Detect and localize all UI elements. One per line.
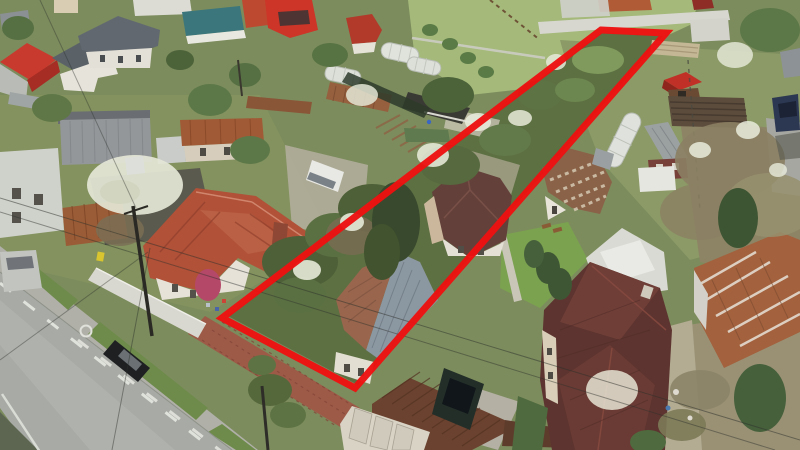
white-garage-top	[690, 18, 730, 42]
aerial-photo-canvas	[0, 0, 800, 450]
white-item	[673, 389, 679, 395]
tree	[2, 16, 34, 40]
blossom-tree	[717, 42, 753, 68]
parcel-grass	[555, 78, 595, 102]
dry-shrub	[670, 370, 730, 410]
window	[136, 55, 141, 62]
person	[427, 120, 431, 124]
tree	[230, 136, 270, 164]
shed-opening	[678, 91, 686, 97]
orchard-tree	[422, 24, 438, 36]
blossom-tree	[346, 84, 378, 106]
green-shed	[404, 128, 450, 142]
junk-pile	[206, 303, 210, 307]
conifer-row	[548, 268, 572, 300]
window	[344, 364, 350, 372]
white-item	[688, 416, 693, 421]
window	[224, 147, 230, 155]
shrub-mass	[479, 124, 531, 156]
aerial-photo	[0, 0, 800, 450]
van-glass	[6, 256, 34, 270]
blossom-tree	[508, 110, 532, 126]
white-van-barn	[125, 156, 145, 175]
tree	[312, 43, 348, 67]
blossom-tree-over-roof	[586, 370, 638, 410]
conifer-row	[524, 240, 544, 268]
tree	[422, 77, 474, 113]
shrub-mass	[274, 277, 326, 313]
car-glass	[778, 101, 797, 118]
window	[34, 194, 43, 205]
blossom-shading	[100, 180, 140, 204]
orchard-tree	[460, 52, 476, 64]
tree	[740, 8, 800, 52]
tree	[32, 94, 72, 122]
blossom-tree	[769, 163, 787, 177]
conifer	[364, 224, 400, 280]
dry-shrub	[658, 409, 706, 441]
window	[200, 148, 206, 156]
conifer	[718, 188, 758, 248]
junk-pile	[222, 299, 226, 303]
pine-tree	[734, 364, 786, 432]
glass-facade	[278, 10, 310, 26]
magenta-flowering-bush	[195, 269, 221, 301]
cream-building	[54, 0, 78, 13]
roadside-bush	[248, 374, 292, 406]
tree	[229, 63, 261, 87]
window	[548, 372, 553, 379]
window	[458, 246, 464, 253]
blossom-tree	[689, 142, 711, 158]
white-van-right	[638, 166, 676, 192]
gray-building-top	[560, 0, 610, 18]
door	[552, 206, 557, 214]
window	[118, 56, 123, 63]
blossom-tree	[736, 121, 760, 139]
white-left-building	[0, 148, 64, 238]
roadside-bush	[248, 355, 276, 375]
window	[190, 290, 196, 298]
orchard-tree	[478, 66, 494, 78]
window	[172, 284, 178, 292]
window	[100, 55, 105, 62]
roadside-bush	[270, 402, 306, 428]
gray-van	[0, 250, 42, 292]
junk-pile	[215, 307, 219, 311]
window	[12, 188, 21, 199]
tree	[188, 84, 232, 116]
blue-bucket	[666, 406, 671, 411]
tree	[166, 50, 194, 70]
orchard-tree	[442, 38, 458, 50]
window	[547, 348, 552, 355]
